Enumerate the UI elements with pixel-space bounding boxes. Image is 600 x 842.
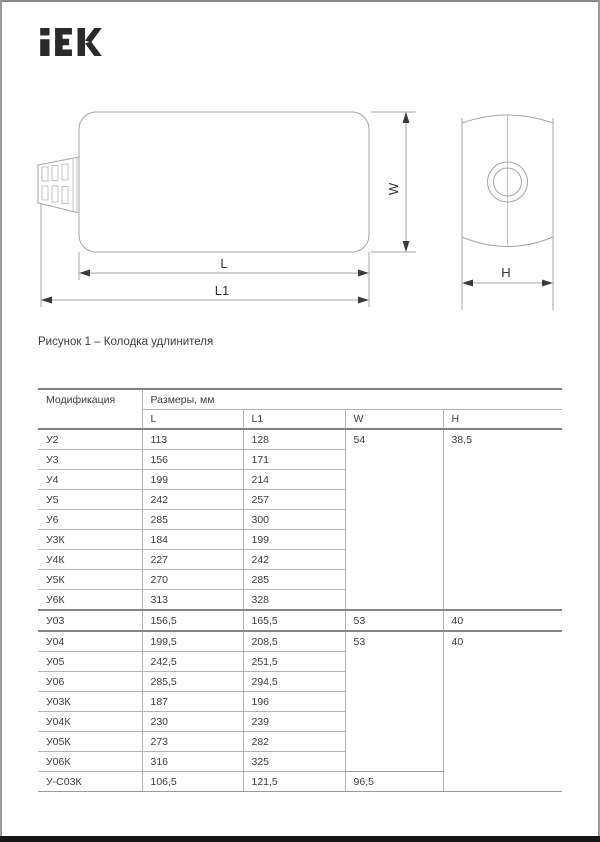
cell-l: 187 (142, 692, 243, 712)
cell-l: 113 (142, 429, 243, 450)
cell-l: 242 (142, 490, 243, 510)
cell-l: 199 (142, 470, 243, 490)
cell-h: 40 (443, 610, 562, 631)
cell-l1: 325 (243, 752, 345, 772)
cell-w: 53 (345, 631, 443, 772)
footer-bar (0, 836, 600, 842)
cell-l: 270 (142, 570, 243, 590)
cell-l1: 128 (243, 429, 345, 450)
table-row: У04199,5208,55340 (38, 631, 562, 652)
cell-l: 156 (142, 450, 243, 470)
modification-header: Модификация (38, 389, 142, 429)
cell-l1: 121,5 (243, 772, 345, 792)
cell-modification: У3К (38, 530, 142, 550)
dimension-l1: L1 (41, 283, 369, 304)
cell-modification: У06 (38, 672, 142, 692)
cell-l: 227 (142, 550, 243, 570)
col-header-l1: L1 (243, 410, 345, 430)
cell-l1: 242 (243, 550, 345, 570)
cell-w: 53 (345, 610, 443, 631)
socket-block-top-view (79, 112, 369, 252)
cell-l: 199,5 (142, 631, 243, 652)
page-border-top (0, 0, 600, 2)
cell-modification: У6К (38, 590, 142, 611)
cell-l1: 294,5 (243, 672, 345, 692)
dimensions-header: Размеры, мм (142, 389, 562, 410)
cell-modification: У03К (38, 692, 142, 712)
cell-l1: 208,5 (243, 631, 345, 652)
dimension-l: L (79, 256, 369, 277)
cell-modification: У3 (38, 450, 142, 470)
cell-modification: У05К (38, 732, 142, 752)
cell-l: 106,5 (142, 772, 243, 792)
cell-l1: 239 (243, 712, 345, 732)
cell-h: 38,5 (443, 429, 562, 610)
cell-modification: У2 (38, 429, 142, 450)
cell-l: 184 (142, 530, 243, 550)
table-row: У03156,5165,55340 (38, 610, 562, 631)
iek-logo-glyph (40, 28, 102, 56)
cell-l1: 257 (243, 490, 345, 510)
cell-l: 316 (142, 752, 243, 772)
cell-modification: У05 (38, 652, 142, 672)
cell-w: 96,5 (345, 772, 443, 792)
dimensions-table: Модификация Размеры, мм L L1 W H У211312… (38, 388, 562, 792)
cell-modification: У04К (38, 712, 142, 732)
catalog-page: IEK (0, 0, 600, 842)
cell-l1: 300 (243, 510, 345, 530)
cell-l1: 251,5 (243, 652, 345, 672)
cell-l: 242,5 (142, 652, 243, 672)
cell-modification: У5К (38, 570, 142, 590)
dim-label-l1: L1 (215, 283, 229, 298)
cell-modification: У-С03К (38, 772, 142, 792)
cell-l1: 285 (243, 570, 345, 590)
iek-logo: IEK (40, 28, 102, 56)
cell-h: 40 (443, 631, 562, 792)
dim-label-h: H (501, 265, 510, 280)
cell-l: 273 (142, 732, 243, 752)
cell-modification: У04 (38, 631, 142, 652)
cell-l1: 328 (243, 590, 345, 611)
col-header-h: H (443, 410, 562, 430)
cell-l: 285,5 (142, 672, 243, 692)
cell-w: 54 (345, 429, 443, 610)
socket-block-side-view (462, 114, 553, 310)
dimension-w: W (386, 112, 410, 252)
cell-l1: 199 (243, 530, 345, 550)
cell-l: 230 (142, 712, 243, 732)
cell-modification: У4 (38, 470, 142, 490)
col-header-l: L (142, 410, 243, 430)
cell-l1: 171 (243, 450, 345, 470)
table-row: У21131285438,5 (38, 429, 562, 450)
extension-lines (41, 112, 416, 307)
dim-label-l: L (220, 256, 227, 271)
cell-l1: 165,5 (243, 610, 345, 631)
col-header-w: W (345, 410, 443, 430)
cell-l1: 214 (243, 470, 345, 490)
cell-modification: У4К (38, 550, 142, 570)
cord-grip (38, 157, 79, 213)
figure-caption: Рисунок 1 – Колодка удлинителя (38, 336, 213, 348)
cell-modification: У5 (38, 490, 142, 510)
cell-modification: У06К (38, 752, 142, 772)
cell-l: 285 (142, 510, 243, 530)
cell-l1: 282 (243, 732, 345, 752)
dimension-h: H (462, 265, 553, 287)
table-header-row: Модификация Размеры, мм (38, 389, 562, 410)
table-body: У21131285438,5У3156171У4199214У5242257У6… (38, 429, 562, 792)
cell-l: 313 (142, 590, 243, 611)
cell-l1: 196 (243, 692, 345, 712)
cell-l: 156,5 (142, 610, 243, 631)
figure-drawing: W L L1 (0, 95, 600, 323)
dim-label-w: W (386, 182, 401, 195)
cell-modification: У03 (38, 610, 142, 631)
cell-modification: У6 (38, 510, 142, 530)
